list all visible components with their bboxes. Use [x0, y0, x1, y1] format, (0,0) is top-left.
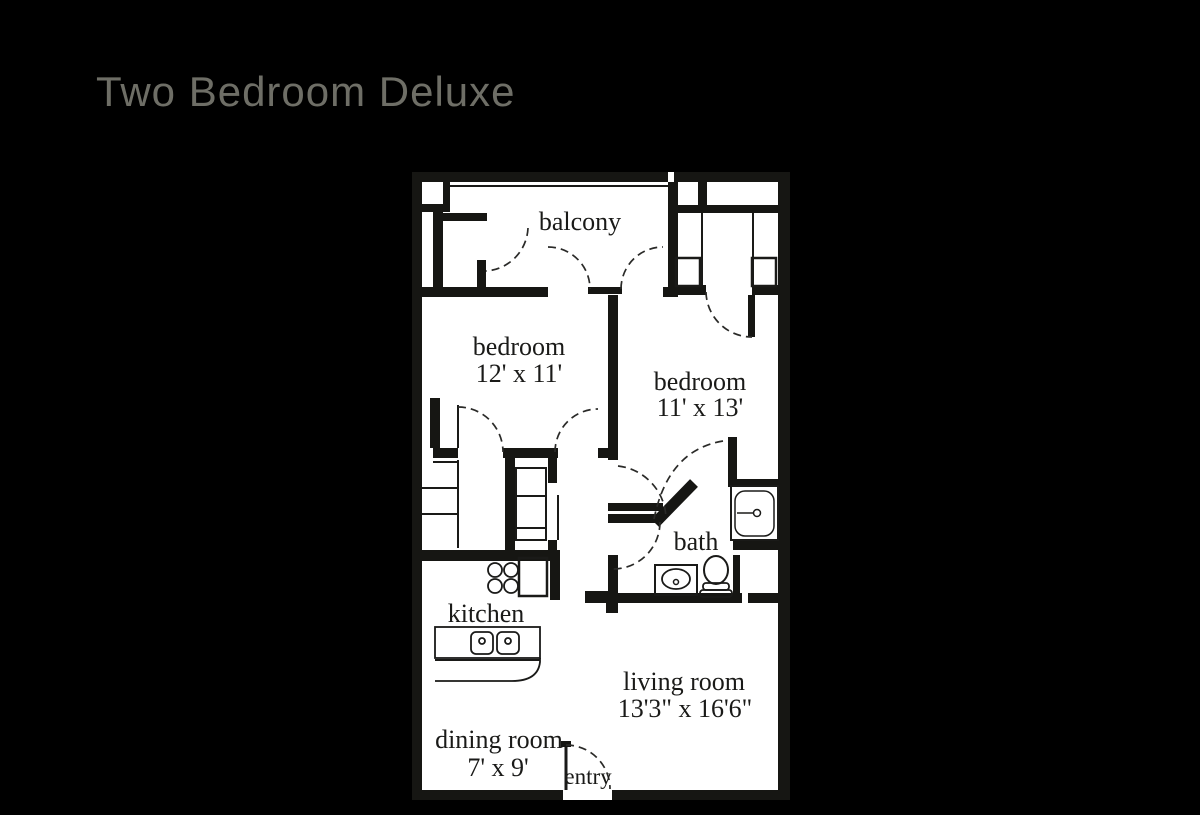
- wall: [698, 178, 707, 205]
- room-label-bedroom1: bedroom: [473, 332, 565, 361]
- wall: [748, 295, 755, 337]
- room-label-balcony: balcony: [539, 207, 621, 236]
- floor-plan-image: balcony bedroom 12' x 11' bedroom 11' x …: [0, 0, 1200, 815]
- floor-plan-page: Two Bedroom Deluxe: [0, 0, 1200, 815]
- room-label-kitchen: kitchen: [448, 599, 525, 628]
- wall: [433, 448, 458, 458]
- wall: [674, 172, 790, 182]
- wall: [412, 790, 563, 800]
- wall: [503, 448, 558, 458]
- wall: [443, 176, 450, 208]
- wall: [674, 205, 790, 213]
- room-dims-living-room: 13'3" x 16'6": [618, 694, 753, 723]
- wall: [608, 503, 663, 511]
- room-label-bath: bath: [674, 527, 719, 556]
- room-dims-bedroom1: 12' x 11': [476, 359, 562, 388]
- wall: [733, 555, 740, 593]
- wall: [412, 172, 668, 182]
- wall: [548, 458, 557, 483]
- wall: [412, 287, 548, 297]
- window-sill: [588, 287, 622, 294]
- wall: [477, 260, 486, 290]
- room-label-bedroom2: bedroom: [654, 367, 746, 396]
- wall: [612, 790, 790, 800]
- wall: [412, 172, 422, 800]
- wall: [748, 593, 790, 603]
- wall: [598, 448, 618, 458]
- wall: [550, 550, 560, 600]
- wall: [778, 172, 790, 800]
- wall: [663, 287, 678, 297]
- room-label-dining-room: dining room: [435, 725, 563, 754]
- wall: [608, 295, 618, 460]
- room-label-entry: entry: [564, 764, 612, 789]
- wall: [433, 212, 443, 290]
- room-dims-bedroom2: 11' x 13': [657, 393, 743, 422]
- wall: [430, 398, 440, 448]
- wall: [443, 213, 487, 221]
- room-dims-dining-room: 7' x 9': [467, 753, 528, 782]
- room-label-living-room: living room: [623, 667, 745, 696]
- wall: [422, 550, 560, 561]
- wall: [505, 458, 515, 550]
